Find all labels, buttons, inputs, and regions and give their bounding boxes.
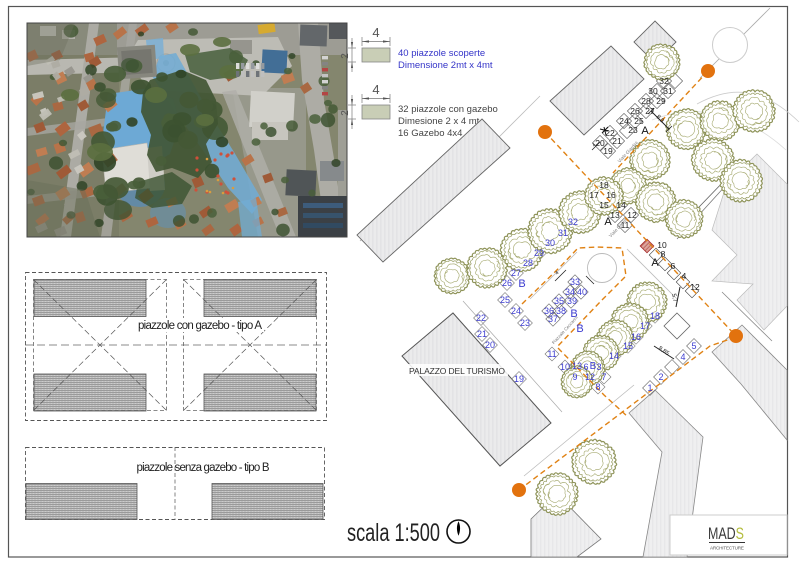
svg-text:16 Gazebo 4x4: 16 Gazebo 4x4 — [398, 128, 462, 139]
svg-text:15: 15 — [623, 341, 633, 351]
svg-text:piazzole con gazebo - tipo A: piazzole con gazebo - tipo A — [138, 320, 262, 332]
svg-text:3: 3 — [596, 362, 601, 372]
svg-text:scala 1:500: scala 1:500 — [347, 519, 440, 547]
svg-text:26: 26 — [502, 278, 512, 288]
svg-text:A: A — [651, 257, 659, 269]
svg-text:12: 12 — [585, 372, 595, 382]
svg-text:17: 17 — [589, 190, 599, 200]
svg-text:15: 15 — [599, 200, 609, 210]
svg-text:32: 32 — [568, 217, 578, 227]
svg-text:28: 28 — [523, 258, 533, 268]
svg-text:32 piazzole con gazebo: 32 piazzole con gazebo — [398, 104, 498, 115]
svg-text:13: 13 — [572, 361, 582, 371]
svg-text:ARCHITECTURE: ARCHITECTURE — [710, 546, 744, 551]
svg-text:2: 2 — [340, 53, 351, 59]
svg-text:29: 29 — [534, 248, 544, 258]
svg-text:18: 18 — [650, 311, 660, 321]
svg-text:27: 27 — [511, 268, 521, 278]
svg-text:13: 13 — [610, 210, 620, 220]
svg-text:piazzole senza gazebo - tipo: piazzole senza gazebo - tipo B — [137, 462, 270, 474]
svg-text:19: 19 — [514, 374, 524, 384]
svg-text:4: 4 — [682, 271, 687, 281]
svg-text:B: B — [590, 361, 597, 372]
svg-text:21: 21 — [612, 136, 622, 146]
svg-text:12: 12 — [627, 210, 637, 220]
svg-text:30: 30 — [648, 86, 658, 96]
svg-text:6: 6 — [583, 362, 588, 372]
svg-text:30: 30 — [545, 238, 555, 248]
svg-text:31: 31 — [663, 86, 673, 96]
svg-text:9: 9 — [572, 372, 577, 382]
svg-text:A: A — [604, 216, 612, 228]
svg-text:28: 28 — [641, 96, 651, 106]
svg-text:7: 7 — [601, 372, 606, 382]
svg-text:37: 37 — [548, 314, 558, 324]
svg-text:4: 4 — [554, 270, 560, 276]
svg-text:B: B — [518, 278, 525, 290]
svg-text:18: 18 — [599, 180, 609, 190]
svg-text:6: 6 — [671, 261, 676, 271]
svg-text:17: 17 — [640, 321, 650, 331]
svg-text:B: B — [576, 323, 583, 335]
svg-text:14: 14 — [616, 200, 626, 210]
svg-text:29: 29 — [656, 96, 666, 106]
svg-text:26: 26 — [630, 106, 640, 116]
svg-text:4: 4 — [680, 352, 685, 362]
svg-text:Dimensione 2mt x 4mt: Dimensione 2mt x 4mt — [398, 60, 493, 71]
svg-text:A: A — [641, 125, 649, 137]
svg-text:32: 32 — [659, 76, 669, 86]
svg-text:21: 21 — [477, 329, 487, 339]
svg-text:40 piazzole scoperte: 40 piazzole scoperte — [398, 48, 485, 59]
svg-text:31: 31 — [558, 228, 568, 238]
svg-text:2: 2 — [340, 110, 351, 116]
svg-text:4: 4 — [372, 25, 379, 40]
svg-text:4: 4 — [372, 82, 379, 97]
svg-text:27: 27 — [645, 106, 655, 116]
svg-text:11: 11 — [547, 349, 556, 359]
svg-text:24: 24 — [511, 306, 521, 316]
svg-text:33: 33 — [570, 277, 580, 287]
svg-text:35: 35 — [554, 296, 564, 306]
svg-text:14: 14 — [609, 351, 619, 361]
svg-text:Dimesione 2 x 4 mt: Dimesione 2 x 4 mt — [398, 116, 480, 127]
svg-text:40: 40 — [577, 287, 587, 297]
svg-text:16: 16 — [606, 190, 616, 200]
svg-text:1: 1 — [647, 383, 652, 393]
svg-text:8: 8 — [595, 382, 600, 392]
svg-text:39: 39 — [567, 296, 577, 306]
svg-text:23: 23 — [520, 318, 530, 328]
svg-text:PALAZZO DEL TURISMO: PALAZZO DEL TURISMO — [409, 366, 505, 376]
svg-text:22: 22 — [476, 313, 486, 323]
svg-text:23: 23 — [628, 125, 638, 135]
svg-text:25: 25 — [500, 295, 510, 305]
svg-text:19: 19 — [603, 146, 613, 156]
svg-text:5: 5 — [691, 341, 696, 351]
svg-text:12: 12 — [690, 282, 700, 292]
svg-text:MADS: MADS — [708, 525, 744, 543]
svg-text:20: 20 — [485, 340, 495, 350]
svg-text:2: 2 — [658, 372, 663, 382]
svg-text:8: 8 — [661, 249, 666, 259]
svg-text:10: 10 — [560, 362, 570, 372]
